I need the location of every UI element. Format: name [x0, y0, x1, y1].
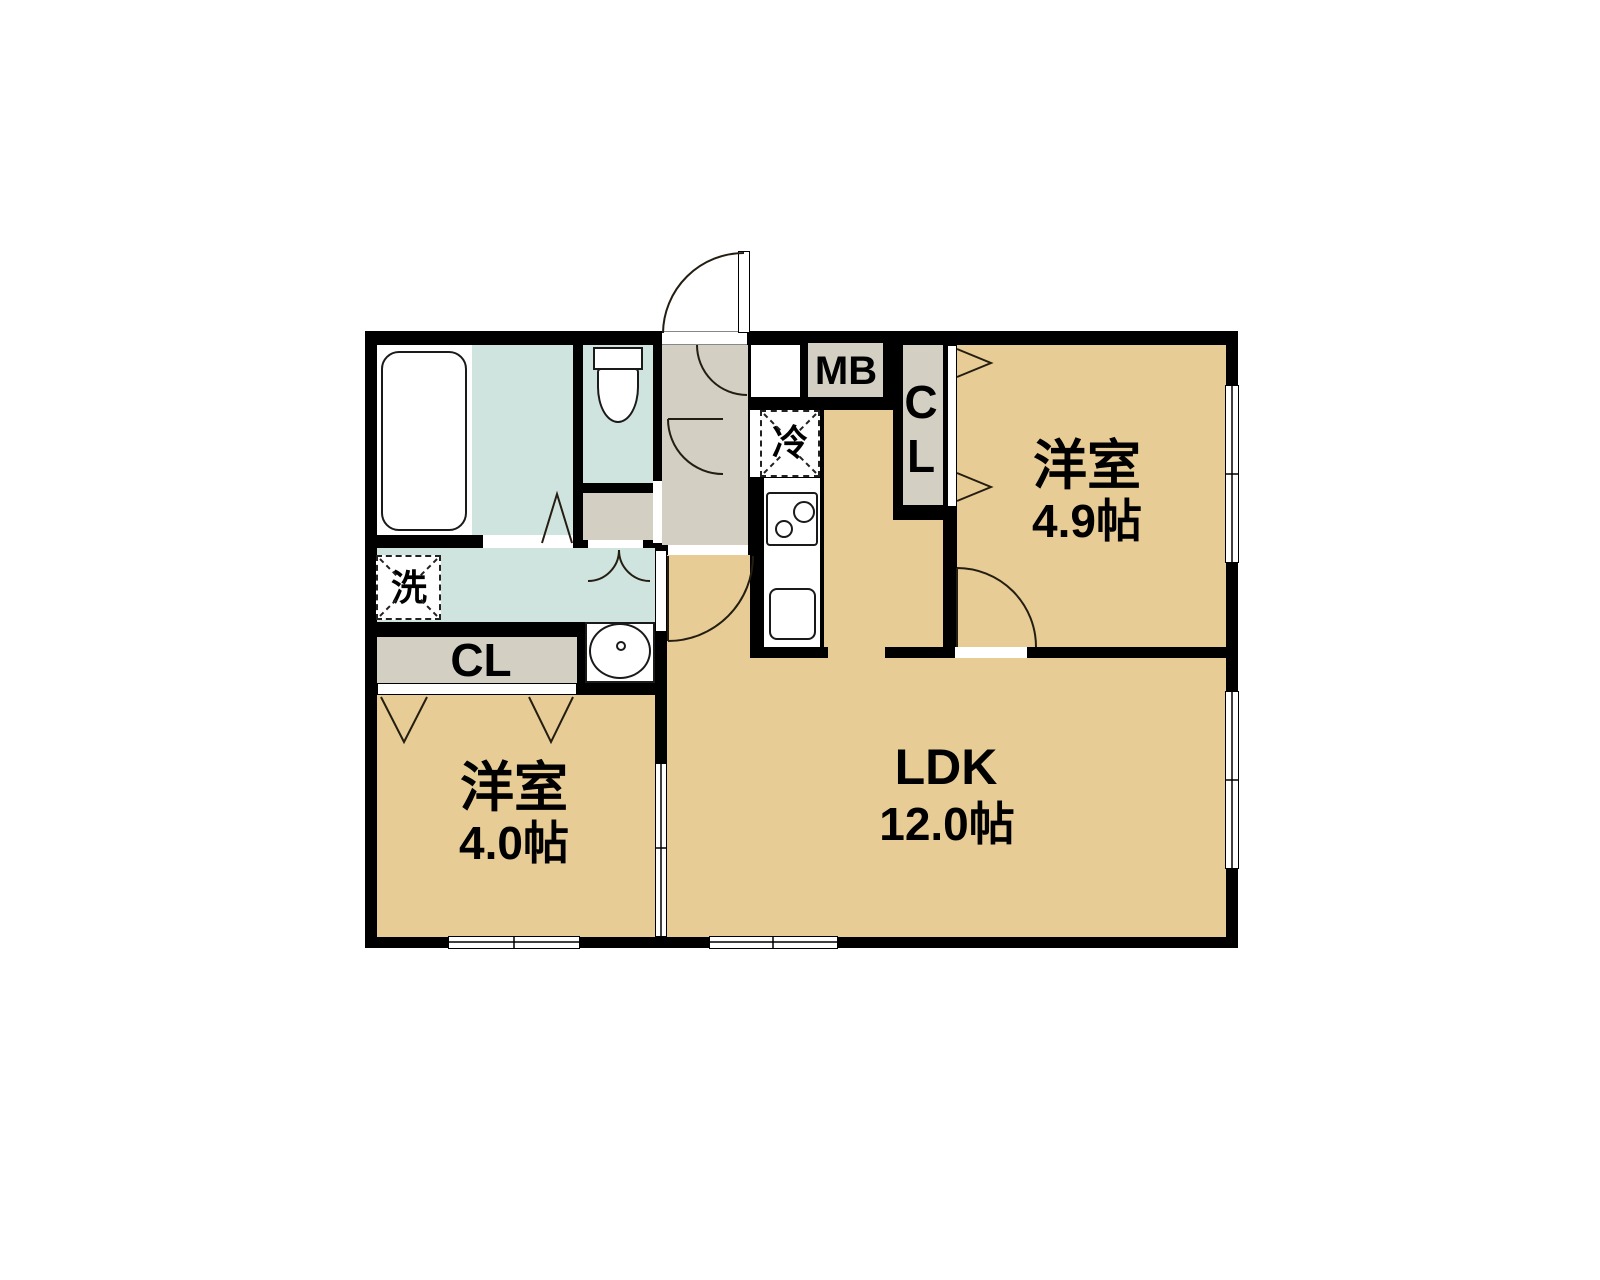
closet-lower-door — [377, 683, 577, 695]
meter-box-label: MB — [815, 351, 877, 391]
washroom-ldk-wall — [655, 632, 667, 695]
window-ldk-right — [1225, 691, 1239, 869]
closet-upper-door — [947, 345, 957, 507]
entrance-opening — [662, 331, 747, 345]
washbasin-bowl — [589, 623, 651, 679]
ldk-size: 12.0帖 — [879, 801, 1015, 847]
entrance-door-leaf — [738, 251, 750, 333]
basin-bottom-wall — [585, 683, 655, 695]
kitchen-sink — [769, 588, 816, 640]
western-b-sliding-door — [655, 763, 667, 937]
ldk-name: LDK — [895, 742, 998, 792]
closet-upper-label: CL — [898, 376, 944, 484]
walkway-western-a-wall — [943, 520, 957, 647]
toilet-tank — [593, 347, 643, 370]
stove-burner-small — [775, 520, 793, 538]
western-a-name: 洋室 — [1033, 439, 1141, 493]
window-western-a-right — [1225, 385, 1239, 563]
entrance-door-arc — [663, 253, 744, 333]
kitchen-walkway — [824, 410, 893, 647]
washbasin-faucet — [616, 641, 626, 651]
walkway-ldk-gap — [828, 647, 885, 658]
bathroom-floor — [472, 345, 573, 535]
refrigerator-label: 冷 — [772, 425, 808, 461]
stove-burner-large — [793, 501, 815, 523]
bathtub — [381, 351, 467, 531]
bathroom-bottom-wall — [377, 535, 483, 548]
hall-vestibule-opening — [653, 481, 662, 543]
floorplan: 洗 CL 洋室 4.0帖 MB 冷 CL 洋室 4.9帖 LDK 12 — [0, 0, 1600, 1280]
closet-lower-label: CL — [450, 637, 511, 683]
porch-nook — [750, 345, 800, 397]
western-a-bottom-wall — [885, 647, 1226, 658]
western-a-size: 4.9帖 — [1032, 498, 1142, 544]
window-western-b-bottom — [448, 936, 580, 949]
western-b-ldk-wall — [655, 695, 667, 763]
porch-wall-line — [748, 345, 751, 397]
hall-ldk-opening — [668, 545, 748, 555]
bath-toilet-wall — [573, 345, 583, 550]
hall-door-area — [667, 555, 750, 658]
western-a-door-sill — [955, 647, 1027, 658]
western-b-size: 4.0帖 — [459, 820, 569, 866]
washroom-ldk-doorstrip — [655, 550, 667, 632]
genkan-hall — [662, 345, 748, 545]
walkway-sliver — [893, 520, 943, 647]
kitchen-left-wall — [750, 477, 763, 650]
washing-machine-label: 洗 — [391, 570, 427, 606]
window-ldk-bottom — [709, 936, 838, 949]
bathroom-door-opening — [483, 535, 573, 548]
western-b-name: 洋室 — [460, 761, 568, 815]
toilet-vestibule — [583, 493, 653, 540]
toilet-vestibule-wall — [583, 483, 653, 493]
